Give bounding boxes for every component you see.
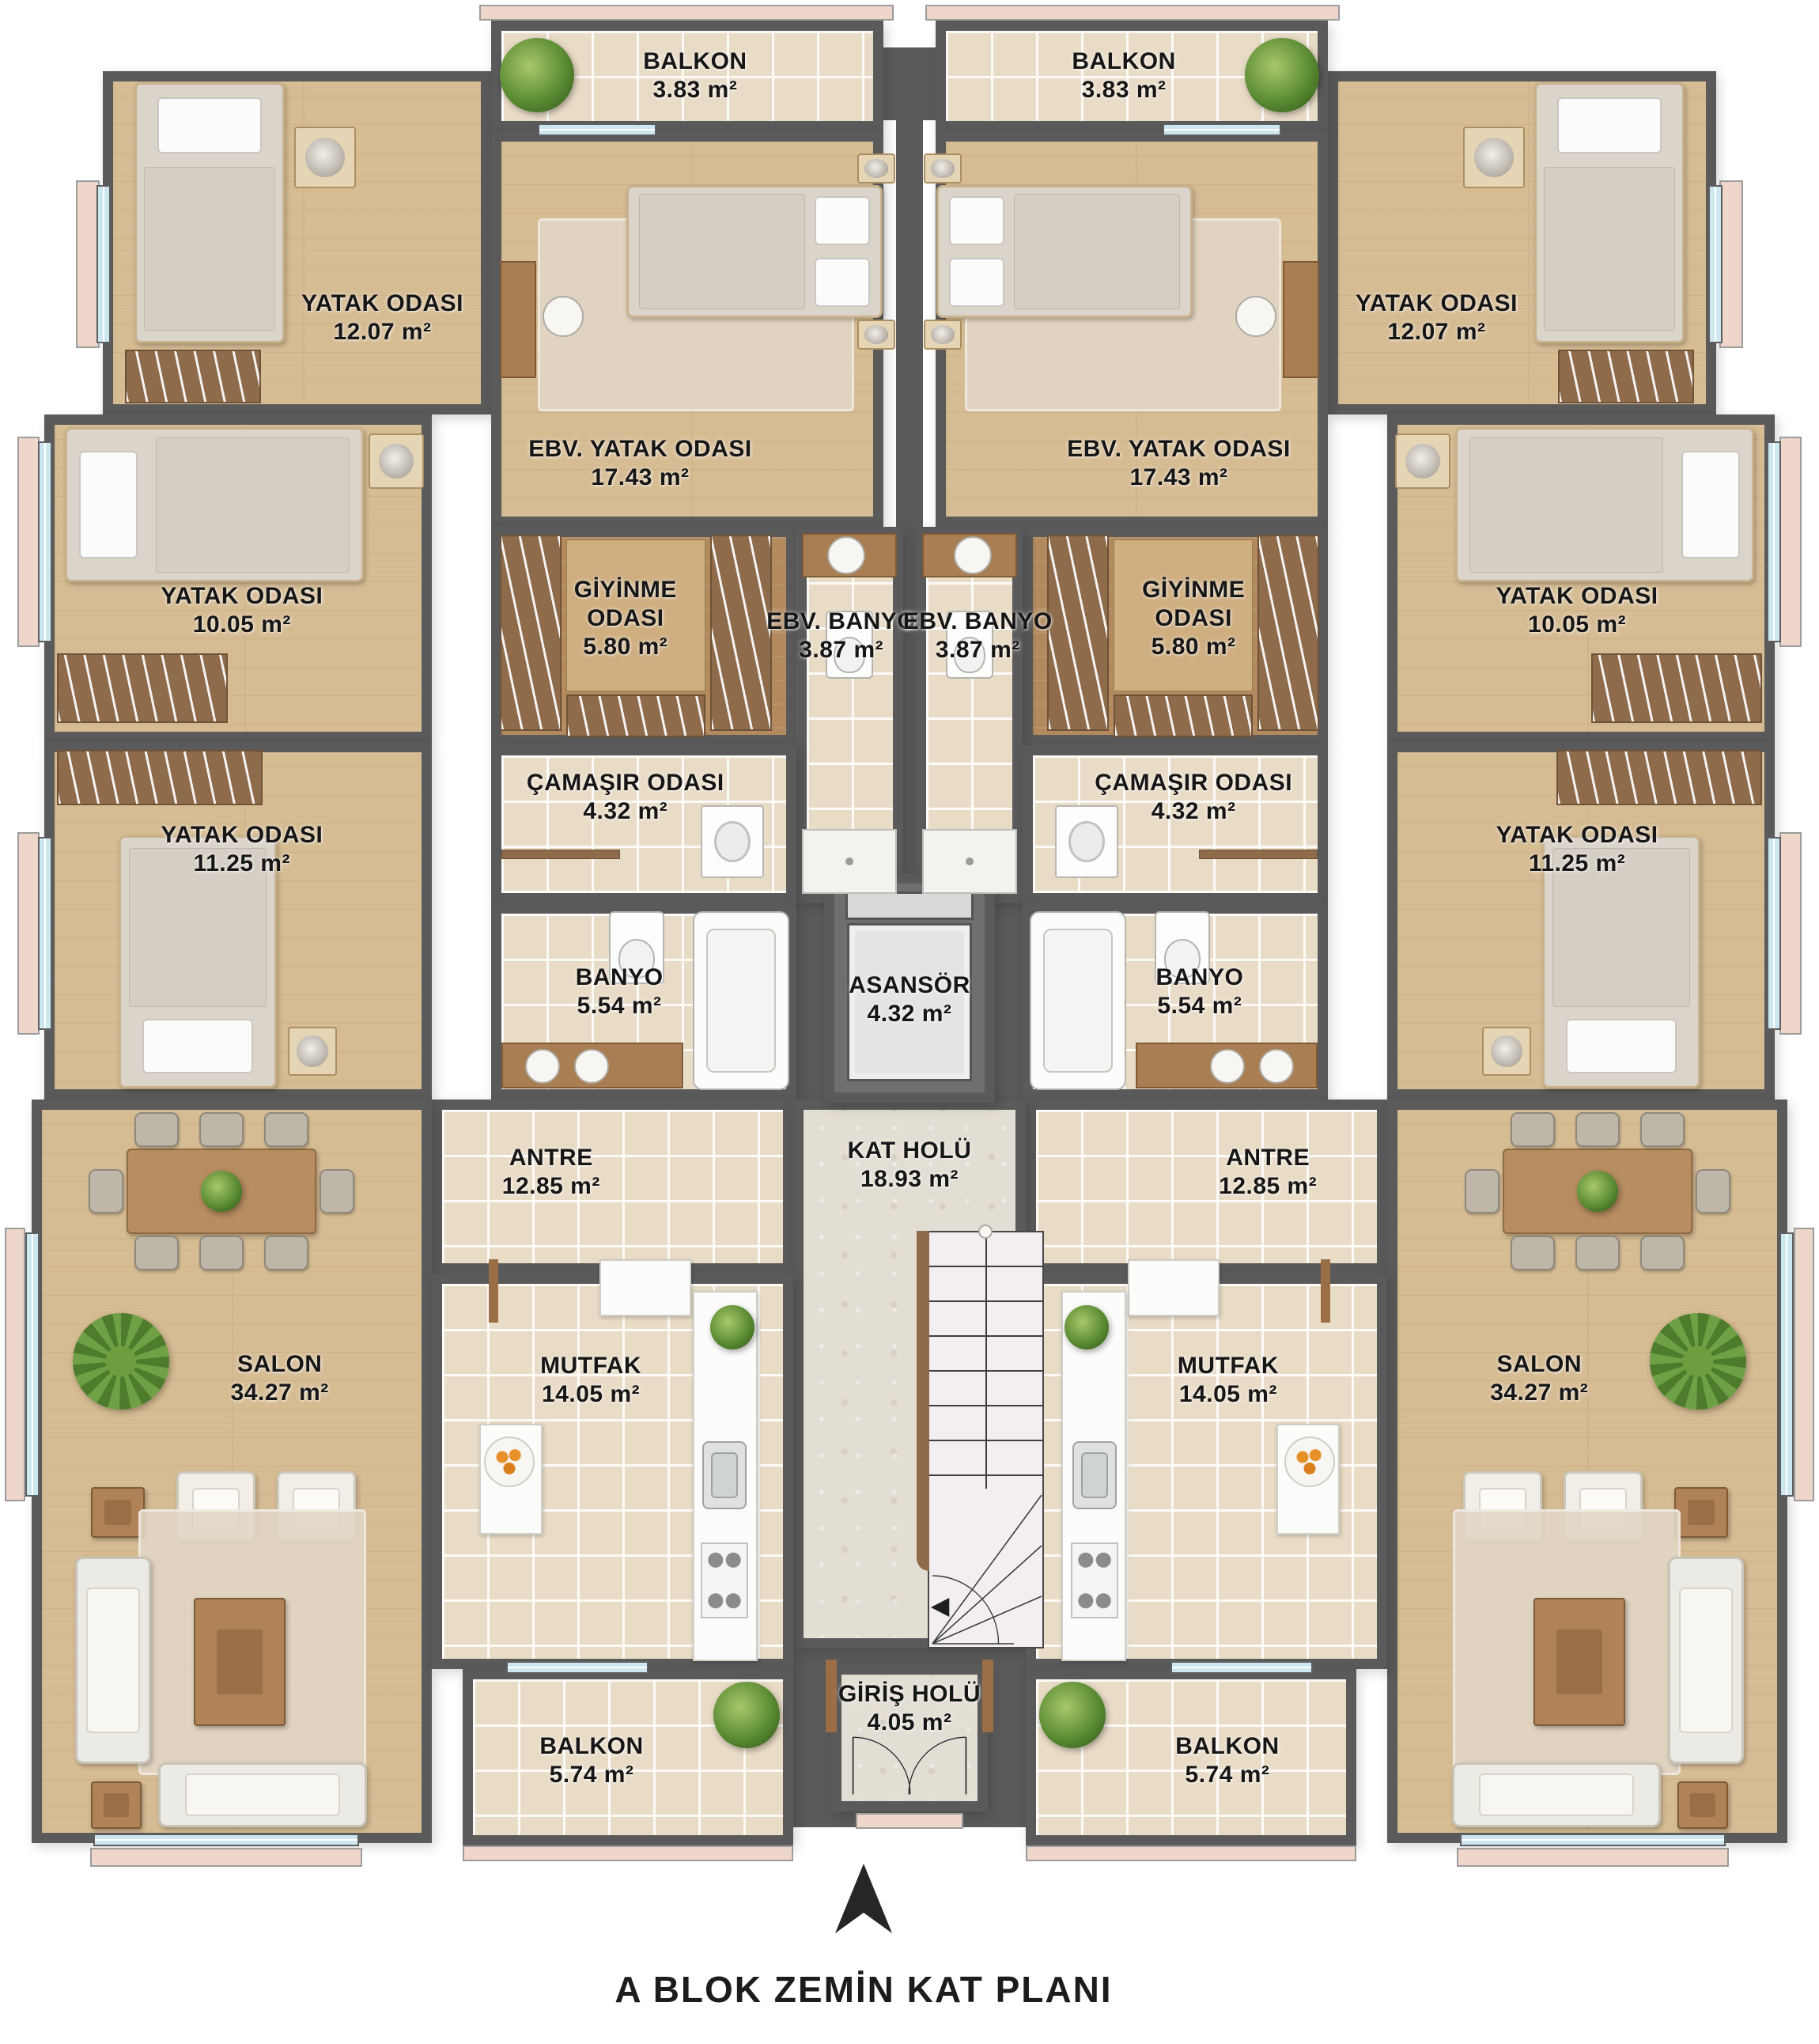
nightstand: [857, 153, 895, 184]
door-jamb: [826, 1660, 837, 1732]
wardrobe: [57, 653, 228, 723]
sofa: [1452, 1762, 1661, 1827]
vanity-counter: [1283, 261, 1319, 378]
window-sill: [925, 5, 1340, 21]
chair: [1575, 1112, 1620, 1147]
room-label-balcony-top-right: BALKON 3.83 m²: [1072, 47, 1175, 104]
room-label-master-bathroom-right: EBV. BANYO 3.87 m²: [903, 608, 1053, 664]
sofa: [158, 1762, 367, 1827]
chair: [264, 1112, 308, 1147]
room-label-laundry-room-left: ÇAMAŞIR ODASI 4.32 m²: [527, 769, 724, 826]
basin: [1210, 1049, 1245, 1084]
plant: [1039, 1682, 1106, 1748]
window-sill: [1794, 1228, 1814, 1501]
wardrobe: [710, 535, 772, 731]
kitchen-sink: [702, 1441, 747, 1509]
basin: [827, 536, 865, 574]
window-sill: [17, 437, 40, 647]
sofa: [75, 1557, 151, 1764]
chair: [134, 1112, 179, 1147]
door-jamb: [982, 1660, 993, 1732]
window: [1708, 185, 1723, 343]
room-label-balcony-top-left: BALKON 3.83 m²: [643, 47, 747, 104]
room-label-bedroom-middle-left: YATAK ODASI 10.05 m²: [161, 582, 323, 639]
plant: [713, 1682, 780, 1748]
window: [93, 1834, 359, 1846]
stair-divider: [985, 1232, 987, 1495]
bed: [65, 427, 364, 582]
chair: [1640, 1112, 1685, 1147]
nightstand: [294, 127, 356, 188]
chair: [89, 1169, 123, 1213]
coffee-table: [1533, 1598, 1625, 1726]
chair: [1575, 1236, 1620, 1270]
basin: [954, 536, 992, 574]
room-label-dressing-room-right: GİYİNME ODASI 5.80 m²: [1142, 576, 1245, 661]
kitchen-sink: [1072, 1441, 1117, 1509]
room-label-kat-holu: KAT HOLÜ 18.93 m²: [848, 1137, 972, 1194]
window: [38, 837, 52, 1030]
stair-handrail: [917, 1231, 929, 1571]
wardrobe: [57, 750, 263, 805]
chair: [1696, 1169, 1730, 1213]
wardrobe: [1556, 750, 1762, 805]
plant-palm: [73, 1313, 169, 1410]
vanity-counter: [500, 261, 536, 378]
wardrobe: [1257, 535, 1319, 731]
room-label-master-bathroom-left: EBV. BANYO 3.87 m²: [766, 608, 916, 664]
room-label-bedroom-top-right: YATAK ODASI 12.07 m²: [1356, 290, 1518, 346]
bed: [936, 185, 1193, 318]
nightstand: [288, 1027, 337, 1076]
kitchen-counter: [599, 1259, 691, 1316]
wardrobe: [1114, 695, 1253, 737]
room-label-bedroom-lower-left: YATAK ODASI 11.25 m²: [161, 821, 323, 878]
floor-plan: A BLOK ZEMİN KAT PLANI YATAK ODASI 12.07…: [0, 0, 1819, 2044]
bed: [626, 185, 883, 318]
plant-palm: [1650, 1313, 1746, 1410]
room-label-bedroom-middle-right: YATAK ODASI 10.05 m²: [1496, 582, 1658, 639]
plant: [1245, 38, 1319, 112]
window: [1767, 837, 1781, 1030]
coffee-table: [91, 1487, 145, 1538]
basin: [1235, 296, 1276, 337]
room-label-dressing-room-left: GİYİNME ODASI 5.80 m²: [574, 576, 677, 661]
room-label-balcony-bottom-left: BALKON 5.74 m²: [539, 1732, 643, 1789]
room-label-kitchen-right: MUTFAK 14.05 m²: [1178, 1352, 1279, 1409]
window-sill: [856, 1813, 963, 1829]
plant: [500, 38, 574, 112]
window-sill: [90, 1848, 362, 1867]
chair: [199, 1112, 244, 1147]
stove: [1071, 1542, 1118, 1618]
window-sill: [463, 1845, 793, 1861]
stove: [701, 1542, 748, 1618]
basin: [543, 296, 584, 337]
nightstand: [369, 433, 424, 489]
basin: [978, 1225, 993, 1239]
room-label-elevator: ASANSÖR 4.32 m²: [849, 971, 970, 1028]
window: [1163, 123, 1281, 136]
kitchen-counter: [1128, 1259, 1220, 1316]
nightstand: [857, 320, 895, 350]
chair: [1511, 1112, 1555, 1147]
basin: [574, 1049, 609, 1084]
bed: [1455, 427, 1754, 582]
room-label-laundry-room-right: ÇAMAŞIR ODASI 4.32 m²: [1095, 769, 1292, 826]
coffee-table: [1677, 1781, 1728, 1829]
shelf: [1199, 850, 1318, 859]
coffee-table: [91, 1781, 142, 1829]
room-label-master-bedroom-right: EBV. YATAK ODASI 17.43 m²: [1067, 435, 1291, 492]
window: [25, 1232, 40, 1497]
room-label-antre-left: ANTRE 12.85 m²: [502, 1144, 600, 1201]
wardrobe: [1558, 350, 1694, 403]
bathtub: [693, 911, 789, 1090]
chair: [264, 1236, 308, 1270]
room-label-bedroom-top-left: YATAK ODASI 12.07 m²: [301, 290, 463, 346]
window: [538, 123, 656, 136]
shower-tray: [802, 829, 897, 894]
room-label-balcony-bottom-right: BALKON 5.74 m²: [1175, 1732, 1279, 1789]
plant: [201, 1171, 242, 1212]
chair: [1511, 1236, 1555, 1270]
window-sill: [1779, 832, 1802, 1035]
window: [1460, 1834, 1726, 1846]
basin: [1259, 1049, 1294, 1084]
chair: [199, 1236, 244, 1270]
chair: [134, 1236, 179, 1270]
room-antre-left: [432, 1100, 793, 1274]
north-arrow: [827, 1864, 900, 1935]
shower-tray: [922, 829, 1017, 894]
sofa: [1668, 1557, 1744, 1764]
fruit-plate: [1284, 1436, 1335, 1487]
nightstand: [1463, 127, 1525, 188]
fruit-plate: [484, 1436, 535, 1487]
room-label-master-bedroom-left: EBV. YATAK ODASI 17.43 m²: [528, 435, 752, 492]
room-label-bathroom-left: BANYO 5.54 m²: [576, 963, 664, 1020]
window-sill: [1026, 1845, 1356, 1861]
window: [38, 441, 52, 642]
plan-title: A BLOK ZEMİN KAT PLANI: [0, 1968, 1727, 2011]
door-jamb: [1321, 1259, 1330, 1323]
nightstand: [1395, 433, 1450, 489]
room-label-bathroom-right: BANYO 5.54 m²: [1155, 963, 1243, 1020]
room-label-antre-right: ANTRE 12.85 m²: [1219, 1144, 1317, 1201]
window: [506, 1661, 649, 1674]
chair: [320, 1169, 354, 1213]
window: [1767, 441, 1781, 642]
nightstand: [924, 153, 962, 184]
plant: [710, 1305, 754, 1349]
shelf: [501, 850, 620, 859]
room-label-giris-holu: GİRİŞ HOLÜ 4.05 m²: [838, 1680, 981, 1737]
basin: [525, 1049, 560, 1084]
room-label-bedroom-lower-right: YATAK ODASI 11.25 m²: [1496, 821, 1658, 878]
window-sill: [479, 5, 894, 21]
room-label-salon-right: SALON 34.27 m²: [1490, 1350, 1588, 1407]
nightstand: [1482, 1027, 1531, 1076]
wardrobe: [125, 350, 261, 403]
window-sill: [1719, 180, 1743, 348]
nightstand: [924, 320, 962, 350]
room-antre-right: [1026, 1100, 1387, 1274]
plant: [1065, 1305, 1109, 1349]
chair: [1465, 1169, 1499, 1213]
window-sill: [5, 1228, 25, 1501]
wardrobe: [566, 695, 705, 737]
door-jamb: [489, 1259, 498, 1323]
window-sill: [1779, 437, 1802, 647]
bed: [1534, 82, 1685, 343]
wardrobe: [500, 535, 562, 731]
bed: [134, 82, 285, 343]
coffee-table: [1674, 1487, 1728, 1538]
room-label-kitchen-left: MUTFAK 14.05 m²: [540, 1352, 641, 1409]
plant: [1577, 1171, 1618, 1212]
coffee-table: [194, 1598, 286, 1726]
window-sill: [1457, 1848, 1729, 1867]
window-sill: [17, 832, 40, 1035]
bathtub: [1030, 911, 1126, 1090]
window: [1779, 1232, 1794, 1497]
window: [1170, 1661, 1313, 1674]
wardrobe: [1047, 535, 1109, 731]
window: [96, 185, 111, 343]
chair: [1640, 1236, 1685, 1270]
stair-winders: [929, 1489, 1042, 1647]
room-label-salon-left: SALON 34.27 m²: [231, 1350, 329, 1407]
wardrobe: [1591, 653, 1762, 723]
room-stairs: [928, 1231, 1044, 1648]
